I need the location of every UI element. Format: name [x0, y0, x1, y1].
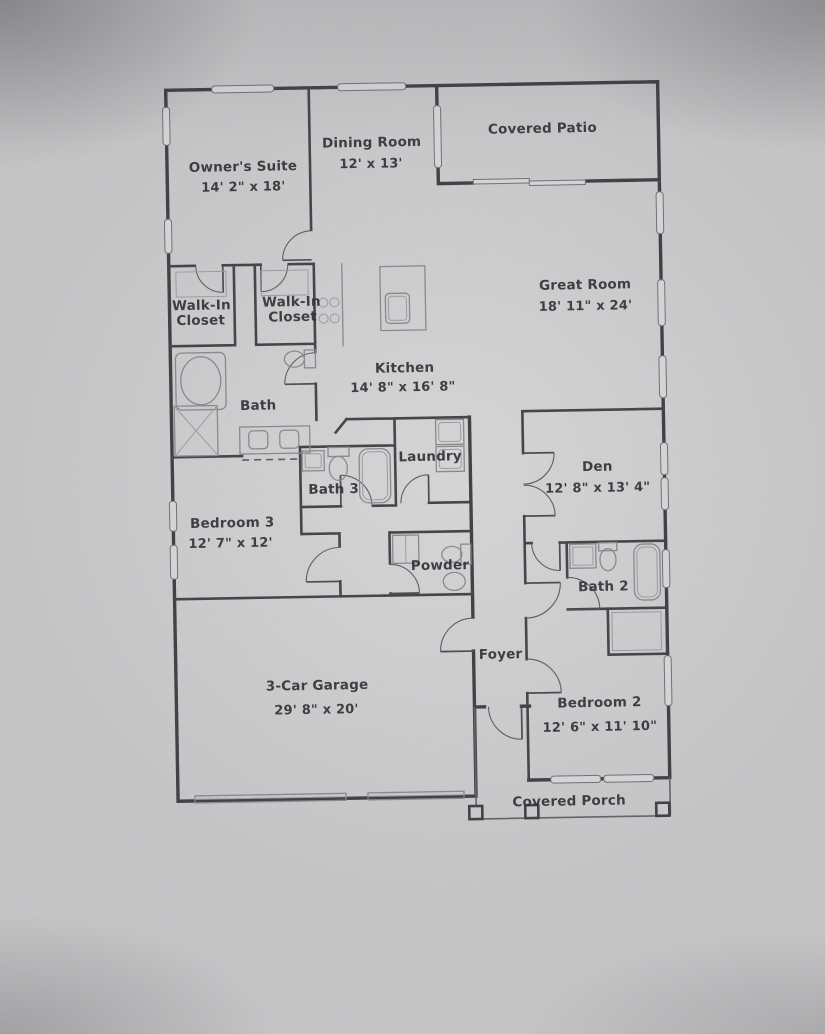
floor-plan-svg: Owner's Suite 14' 2" x 18' Dining Room 1… — [0, 0, 825, 1034]
floor-plan-photo: Owner's Suite 14' 2" x 18' Dining Room 1… — [0, 0, 825, 1034]
paper-grain-overlay — [0, 0, 825, 1034]
